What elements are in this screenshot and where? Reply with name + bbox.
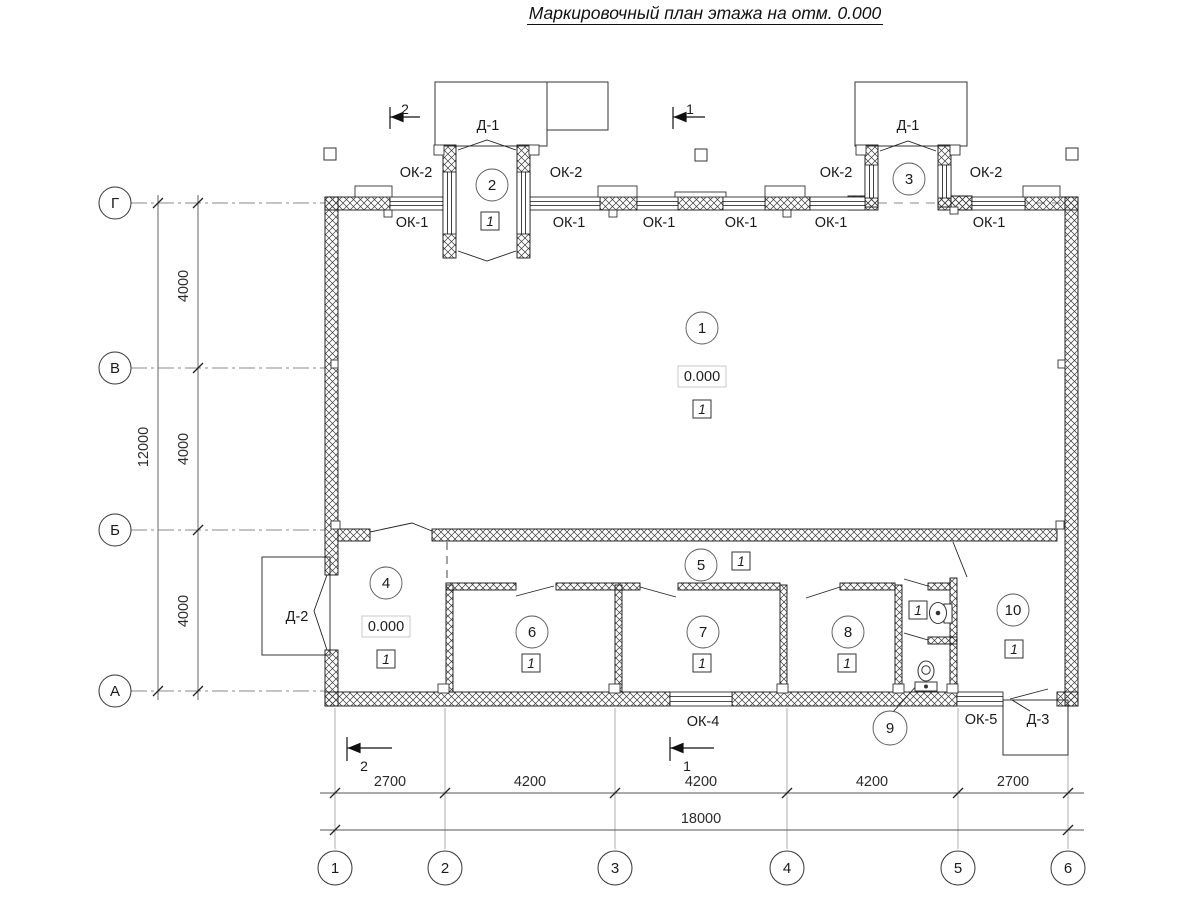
axis-row-b: Б xyxy=(110,522,120,539)
hall-door-leaf xyxy=(370,523,432,532)
label-ok2-4: ОК-2 xyxy=(970,165,1003,181)
porch-side-left xyxy=(262,557,330,655)
porch-ramp-left xyxy=(547,82,608,130)
room6-door-leaf xyxy=(516,586,554,596)
window-ok4-opening xyxy=(670,692,732,706)
room10-door-leaf xyxy=(953,542,967,577)
label-d3: Д-3 xyxy=(1027,712,1050,728)
label-ok1-1: ОК-1 xyxy=(396,215,429,231)
room-9-number: 9 xyxy=(886,720,894,737)
label-ok2-1: ОК-2 xyxy=(400,165,433,181)
dim-4000-1: 4000 xyxy=(176,270,192,302)
drawing-title-text: Маркировочный план этажа на отм. 0.000 xyxy=(527,3,884,25)
floor-type-marks: 1 1 1 1 1 1 1 1 1 xyxy=(377,212,1023,672)
room-5-number: 5 xyxy=(697,557,705,574)
room-numbers: 1 2 3 4 5 6 7 8 9 10 xyxy=(382,171,1022,737)
axis-row-g: Г xyxy=(111,195,119,212)
room-1-number: 1 xyxy=(698,320,706,337)
floor-mark-room10: 1 xyxy=(1010,642,1018,657)
porch-entrance-right xyxy=(855,82,967,146)
axis-row-v: В xyxy=(110,360,120,377)
floor-mark-room8: 1 xyxy=(843,656,851,671)
elevation-room1: 0.000 xyxy=(684,369,720,385)
floor-mark-washroom: 1 xyxy=(914,603,922,618)
section-top-1-label: 1 xyxy=(686,101,694,117)
label-ok1-4: ОК-1 xyxy=(725,215,758,231)
drawing-title: Маркировочный план этажа на отм. 0.000 xyxy=(470,3,940,24)
label-ok1-5: ОК-1 xyxy=(815,215,848,231)
label-d2: Д-2 xyxy=(286,609,309,625)
elevation-marks: 0.000 0.000 xyxy=(362,366,726,637)
label-ok1-3: ОК-1 xyxy=(643,215,676,231)
axis-row-a: А xyxy=(110,683,120,700)
dim-4200-3: 4200 xyxy=(856,774,888,790)
porch-entrance-left xyxy=(435,82,547,146)
dim-4000-2: 4000 xyxy=(176,433,192,465)
floor-mark-room5: 1 xyxy=(737,554,745,569)
dim-4000-3: 4000 xyxy=(176,595,192,627)
floor-mark-room4: 1 xyxy=(382,652,390,667)
label-ok1-6: ОК-1 xyxy=(973,215,1006,231)
dim-2700-1: 2700 xyxy=(374,774,406,790)
axis-col-5: 5 xyxy=(954,860,962,877)
windows xyxy=(390,165,1025,706)
axis-col-2: 2 xyxy=(441,860,449,877)
floor-mark-room7: 1 xyxy=(698,656,706,671)
section-mark-bottom-2 xyxy=(347,737,392,761)
dim-4200-2: 4200 xyxy=(685,774,717,790)
section-bottom-1-label: 1 xyxy=(683,758,691,774)
axis-col-1: 1 xyxy=(331,860,339,877)
section-bottom-2-label: 2 xyxy=(360,758,368,774)
section-mark-bottom-1 xyxy=(670,737,714,761)
room-8-number: 8 xyxy=(844,624,852,641)
label-ok5: ОК-5 xyxy=(965,712,998,728)
axis-col-4: 4 xyxy=(783,860,791,877)
tambour-inner-door-leaf xyxy=(458,251,516,261)
dim-2700-2: 2700 xyxy=(997,774,1029,790)
room-6-number: 6 xyxy=(528,624,536,641)
dim-18000: 18000 xyxy=(681,811,721,827)
label-ok2-2: ОК-2 xyxy=(550,165,583,181)
dimension-lines xyxy=(158,195,1084,830)
elevation-room4: 0.000 xyxy=(368,619,404,635)
label-ok1-2: ОК-1 xyxy=(553,215,586,231)
axis-col-3: 3 xyxy=(611,860,619,877)
room-7-number: 7 xyxy=(699,624,707,641)
dimension-labels: 4000 4000 4000 12000 2700 4200 4200 4200… xyxy=(136,270,1029,827)
room-3-number: 3 xyxy=(905,171,913,188)
label-d1-right: Д-1 xyxy=(897,118,920,134)
washroom-door-leaf xyxy=(904,579,928,586)
door-d3-leaf xyxy=(1010,689,1048,699)
room-10-number: 10 xyxy=(1005,602,1022,619)
section-top-2-label: 2 xyxy=(401,101,409,117)
room-2-number: 2 xyxy=(488,177,496,194)
sink-fixture xyxy=(930,603,953,624)
wc-door-leaf xyxy=(904,633,928,640)
room7-door-leaf xyxy=(640,587,676,597)
toilet-fixture xyxy=(915,661,937,691)
floor-mark-room1: 1 xyxy=(698,402,706,417)
floor-mark-room6: 1 xyxy=(527,656,535,671)
window-ok5-opening xyxy=(957,692,1003,706)
exterior-walls xyxy=(325,145,1078,706)
drawing-sheet: Маркировочный план этажа на отм. 0.000 xyxy=(0,0,1200,900)
label-ok2-3: ОК-2 xyxy=(820,165,853,181)
dim-4200-1: 4200 xyxy=(514,774,546,790)
floor-plan-canvas: 4000 4000 4000 12000 2700 4200 4200 4200… xyxy=(0,0,1200,900)
dim-12000: 12000 xyxy=(136,427,152,467)
room8-door-leaf xyxy=(806,587,840,598)
label-ok4: ОК-4 xyxy=(687,714,720,730)
axis-col-6: 6 xyxy=(1064,860,1072,877)
dimension-ticks xyxy=(153,198,1073,835)
floor-mark-room2: 1 xyxy=(486,214,494,229)
label-d1-left: Д-1 xyxy=(477,118,500,134)
room-4-number: 4 xyxy=(382,575,390,592)
